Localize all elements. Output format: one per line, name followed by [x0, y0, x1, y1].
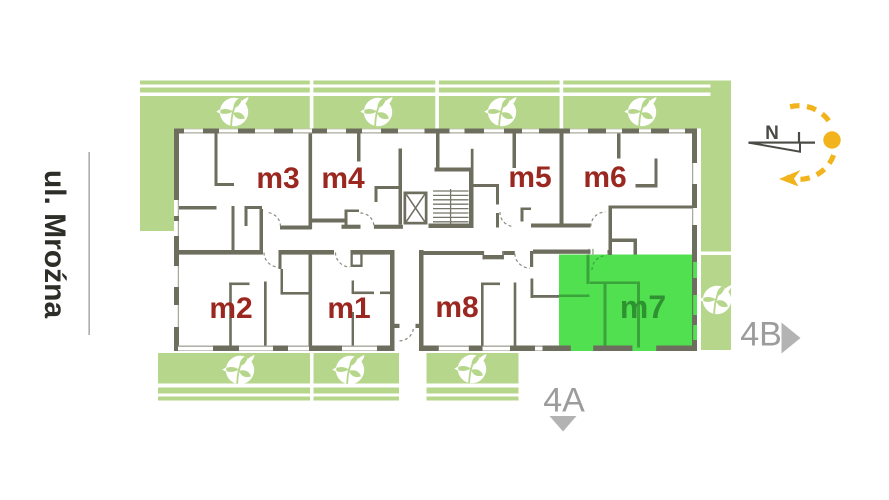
- svg-text:m1: m1: [327, 292, 370, 325]
- svg-text:m5: m5: [508, 161, 551, 194]
- svg-text:m3: m3: [256, 162, 299, 195]
- svg-text:4A: 4A: [543, 382, 585, 420]
- svg-text:ul. Mroźna: ul. Mroźna: [38, 170, 71, 319]
- svg-text:N: N: [765, 123, 779, 144]
- svg-text:m6: m6: [583, 161, 626, 194]
- svg-text:4B: 4B: [740, 316, 782, 354]
- svg-text:m4: m4: [321, 162, 365, 195]
- svg-text:m7: m7: [620, 289, 666, 325]
- svg-text:m8: m8: [435, 291, 478, 324]
- svg-text:m2: m2: [209, 292, 252, 325]
